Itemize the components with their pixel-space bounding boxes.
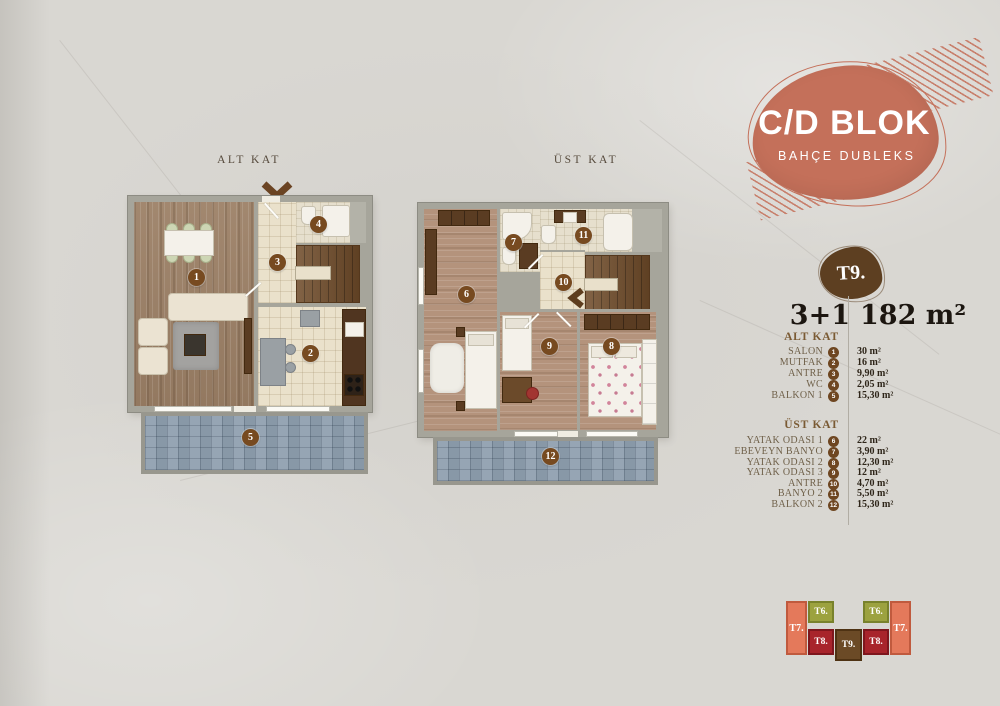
room-number-badge: 4: [310, 216, 327, 233]
floor-plan-ust-kat: 6 7 11 10 9 8 12: [418, 203, 668, 477]
stove: [344, 374, 364, 396]
stair-landing: [296, 267, 330, 279]
site-block-t8-left: T8.: [808, 629, 834, 655]
legend-room-number-badge: 5: [828, 391, 839, 402]
legend-room-area: 22 m²: [857, 435, 881, 446]
legend-room-label: BALKON 1: [660, 390, 823, 401]
room-number-badge: 1: [188, 269, 205, 286]
interior-wall: [497, 209, 500, 431]
armchair: [138, 347, 168, 375]
block-subtitle: BAHÇE DUBLEKS: [778, 148, 915, 162]
bathtub: [603, 213, 633, 251]
site-block-t6-right: T6.: [863, 601, 889, 623]
legend-room-area: 15,30 m²: [857, 390, 893, 401]
floor-title-alt-kat: ALT KAT: [189, 154, 309, 166]
desk-chair: [526, 387, 539, 400]
interior-wall: [296, 243, 366, 245]
bathroom-vanity: [519, 243, 538, 269]
legend-room-area: 5,50 m²: [857, 488, 888, 499]
shaft-area: [350, 202, 366, 243]
armchair: [138, 318, 168, 346]
entry-door-opening: [262, 196, 280, 202]
site-block-t8-right: T8.: [863, 629, 889, 655]
pillow: [468, 334, 494, 346]
room-number-badge: 12: [542, 448, 559, 465]
bathroom-sink: [563, 212, 577, 223]
floor-plan-alt-kat: 1 3 4 2 5: [128, 196, 372, 466]
floor-title-ust-kat: ÜST KAT: [526, 154, 646, 166]
legend-room-area: 15,30 m²: [857, 499, 893, 510]
site-block-t9-center: T9.: [835, 629, 862, 661]
wardrobe: [438, 210, 490, 226]
room-number-badge: 6: [458, 286, 475, 303]
legend-room-number-badge: 12: [828, 500, 839, 511]
room-number-badge: 2: [302, 345, 319, 362]
nightstand: [456, 327, 465, 337]
legend-row: BALKON 2 12 15,30 m²: [660, 499, 940, 511]
coffee-table: [184, 334, 206, 356]
room-number-badge: 9: [541, 338, 558, 355]
cabinet: [642, 339, 657, 425]
legend-row: BALKON 1 5 15,30 m²: [660, 390, 940, 402]
dining-table: [164, 230, 214, 256]
legend-room-label: SALON: [660, 346, 823, 357]
legend-room-area: 3,90 m²: [857, 446, 888, 457]
legend-room-area: 9,90 m²: [857, 368, 888, 379]
wardrobe: [584, 314, 650, 330]
nightstand: [456, 401, 465, 411]
brochure-page: ALT KAT ÜST KAT: [0, 0, 1000, 706]
legend-room-label: BANYO 2: [660, 488, 823, 499]
legend-header-alt-kat: ALT KAT: [699, 331, 839, 343]
toilet: [541, 225, 556, 244]
rug: [430, 343, 464, 393]
window: [418, 349, 424, 393]
stairs-arrow-left-icon: [567, 287, 585, 309]
legend-room-label: MUTFAK: [660, 357, 823, 368]
site-block-t7-left: T7.: [786, 601, 807, 655]
kitchen-sink: [345, 322, 364, 337]
block-title: C/D BLOK: [758, 104, 930, 143]
wardrobe: [425, 229, 437, 295]
shaft-area: [632, 209, 662, 252]
room-number-badge: 3: [269, 254, 286, 271]
legend-header-ust-kat: ÜST KAT: [699, 419, 839, 431]
unit-room-count: 3+1: [758, 300, 850, 331]
legend-room-area: 16 m²: [857, 357, 881, 368]
legend-room-label: YATAK ODASI 3: [660, 467, 823, 478]
room-number-badge: 11: [575, 227, 592, 244]
legend-room-label: YATAK ODASI 1: [660, 435, 823, 446]
room-number-badge: 10: [555, 274, 572, 291]
legend-room-label: EBEVEYN BANYO: [660, 446, 823, 457]
unit-total-area: 182 m²: [860, 300, 966, 331]
legend-room-label: ANTRE: [660, 368, 823, 379]
room-number-badge: 5: [242, 429, 259, 446]
site-block-t7-right: T7.: [890, 601, 911, 655]
tv-unit: [244, 318, 252, 374]
kitchen-table: [260, 338, 286, 386]
window: [418, 267, 424, 305]
legend-room-label: BALKON 2: [660, 499, 823, 510]
legend-room-label: WC: [660, 379, 823, 390]
legend-room-area: 30 m²: [857, 346, 881, 357]
legend-room-area: 12 m²: [857, 467, 881, 478]
legend-room-area: 2,05 m²: [857, 379, 888, 390]
interior-wall: [500, 309, 662, 312]
interior-wall: [258, 303, 366, 307]
kitchen-chair: [285, 344, 296, 355]
site-block-t6-left: T6.: [808, 601, 834, 623]
room-number-badge: 8: [603, 338, 620, 355]
kitchen-chair: [285, 362, 296, 373]
fridge: [300, 310, 320, 327]
interior-wall: [540, 250, 585, 252]
sofa: [168, 293, 248, 321]
site-plan-minimap: T7. T6. T8. T9. T8. T6. T7.: [786, 600, 912, 662]
room-number-badge: 7: [505, 234, 522, 251]
interior-wall: [577, 312, 580, 430]
stair-landing: [585, 279, 617, 290]
